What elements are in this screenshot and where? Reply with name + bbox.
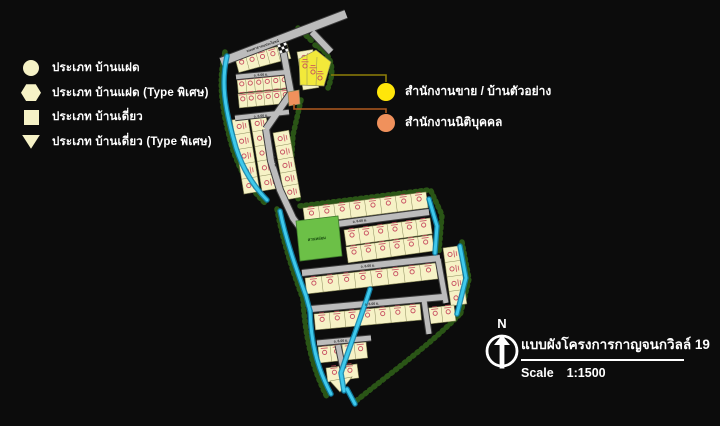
legend-item-twin-house-special: ประเภท บ้านแฝด (Type พิเศษ) — [20, 81, 212, 106]
north-label: N — [482, 318, 522, 330]
detached-house-special-triangle-icon — [22, 135, 40, 149]
legend-label: ประเภท บ้านแฝด — [52, 59, 140, 77]
project-title: แบบผังโครงการกาญจนกวิลล์ 19 — [521, 333, 710, 355]
title-block: แบบผังโครงการกาญจนกวิลล์ 19 Scale 1:1500 — [521, 333, 710, 380]
scale-value: 1:1500 — [567, 366, 606, 380]
legend-item-detached-house: ประเภท บ้านเดี่ยว — [20, 105, 212, 130]
callout-sales-office: สำนักงานขาย / บ้านตัวอย่าง — [377, 82, 551, 101]
legend-label: ประเภท บ้านแฝด (Type พิเศษ) — [52, 84, 209, 102]
legend: ประเภท บ้านแฝด ประเภท บ้านแฝด (Type พิเศ… — [20, 56, 212, 154]
detached-house-square-icon — [24, 110, 39, 125]
sales-office-label: สำนักงานขาย / บ้านตัวอย่าง — [405, 82, 551, 101]
juristic-office-label: สำนักงานนิติบุคคล — [405, 113, 502, 132]
sales-office-marker-icon — [377, 83, 395, 101]
legend-item-twin-house: ประเภท บ้านแฝด — [20, 56, 212, 81]
north-arrow-icon — [482, 330, 522, 370]
scale-row: Scale 1:1500 — [521, 366, 710, 380]
site-plan-screenshot: สวนหย่อมถนนสาธารณประโยชน์ถ. 6.00 ม.ถ. 6.… — [0, 0, 720, 426]
legend-label: ประเภท บ้านเดี่ยว — [52, 108, 143, 126]
callout-juristic-office: สำนักงานนิติบุคคล — [377, 113, 502, 132]
juristic-office-marker-icon — [377, 114, 395, 132]
twin-house-special-hexagon-icon — [21, 84, 41, 101]
legend-item-detached-house-special: ประเภท บ้านเดี่ยว (Type พิเศษ) — [20, 130, 212, 155]
twin-house-circle-icon — [23, 60, 39, 76]
scale-label: Scale — [521, 366, 554, 380]
legend-label: ประเภท บ้านเดี่ยว (Type พิเศษ) — [52, 133, 212, 151]
north-compass: N — [482, 318, 522, 375]
title-divider — [521, 359, 684, 361]
